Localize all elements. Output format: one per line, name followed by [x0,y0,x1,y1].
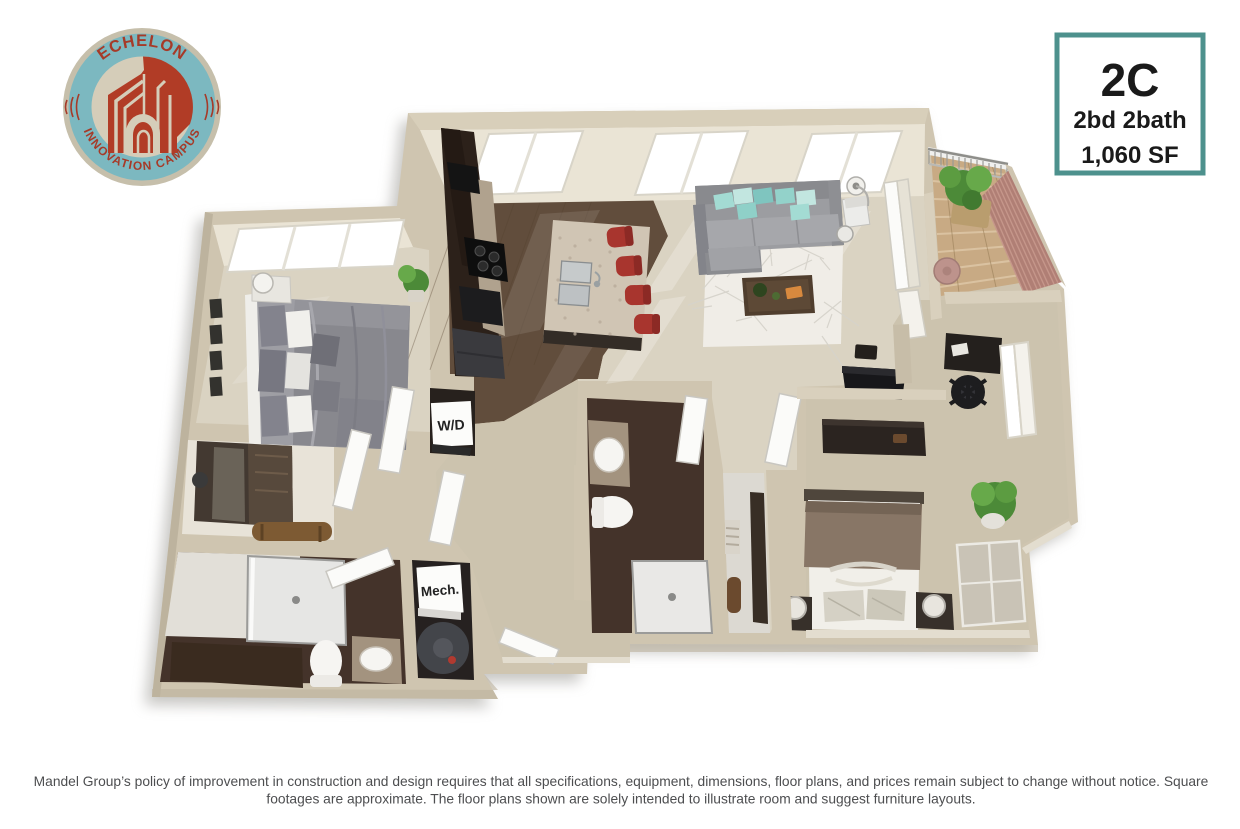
svg-text:2C: 2C [1101,54,1160,106]
svg-text:footages are approximate. The: footages are approximate. The floor plan… [266,792,975,807]
svg-text:2bd 2bath: 2bd 2bath [1073,107,1186,134]
svg-text:1,060 SF: 1,060 SF [1081,142,1178,169]
svg-text:Mandel Group’s policy of impro: Mandel Group’s policy of improvement in … [34,774,1209,789]
svg-text:W/D: W/D [437,416,465,433]
svg-text:Mech.: Mech. [420,582,459,600]
